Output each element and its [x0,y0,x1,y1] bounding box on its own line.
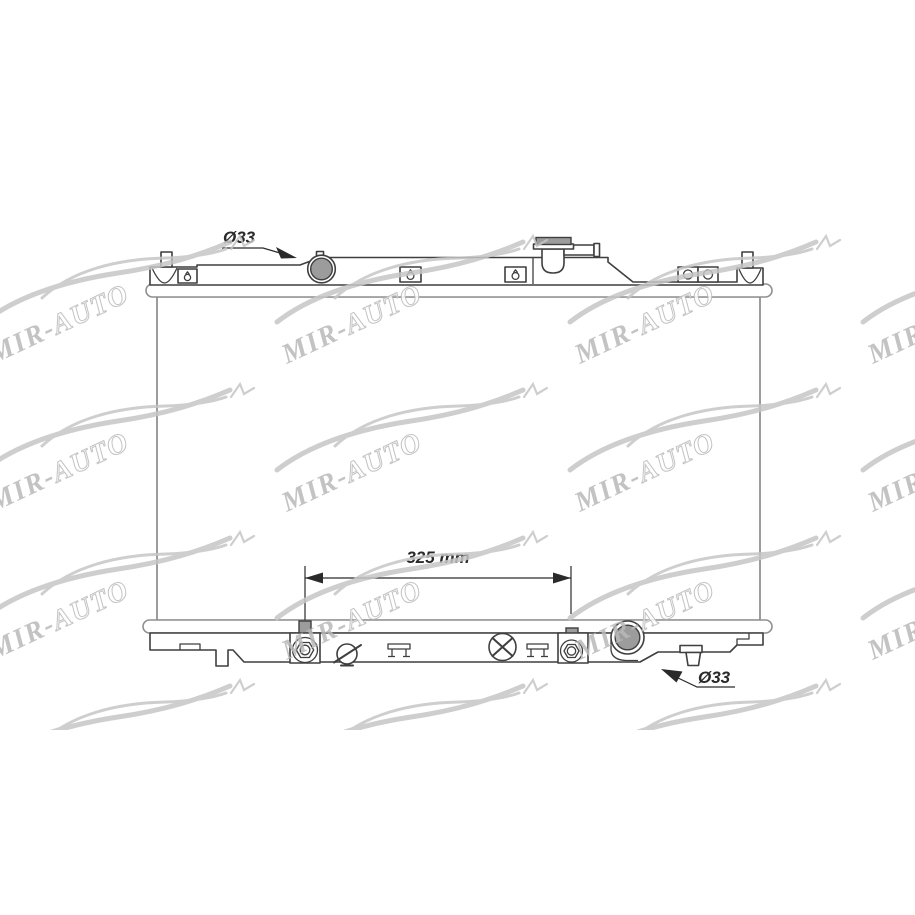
radiator-diagram: MIR-AUTO [0,0,915,915]
watermark-layer [0,218,915,730]
diagram-canvas: MIR-AUTO [0,0,915,915]
